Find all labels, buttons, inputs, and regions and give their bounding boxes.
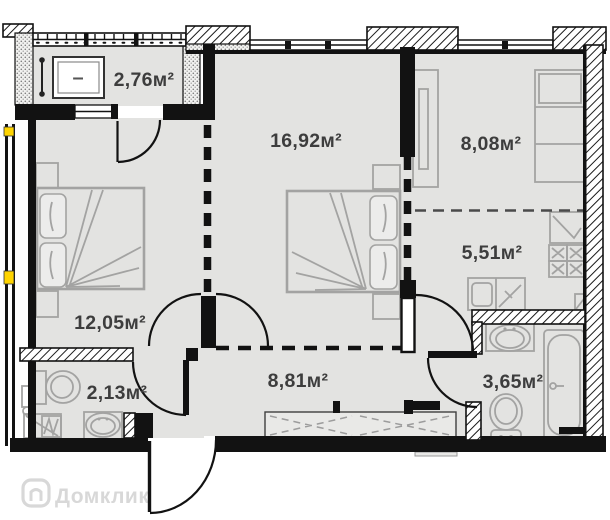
left-outer-line-2 — [12, 124, 15, 446]
hall-doors-pier — [201, 296, 216, 348]
floor-plan-page: Домклик — [0, 0, 610, 520]
balcony-cabinet-icon: – — [53, 57, 104, 98]
neighbor-door-threshold — [415, 452, 457, 456]
wc-corner-stub — [135, 413, 153, 438]
area-label-hallway: 8,81м² — [268, 370, 329, 392]
balcony-sill-wall-left — [15, 104, 75, 120]
wall-balcony-living — [203, 44, 215, 120]
closet-stub — [333, 401, 340, 413]
domclick-watermark: Домклик — [23, 480, 149, 508]
balcony-unit-label: – — [72, 67, 83, 89]
floor-plan: Домклик — [0, 0, 610, 520]
bathroom-top-wall — [472, 310, 585, 324]
bath-elbow-wall — [413, 401, 440, 410]
top-pier-1 — [186, 26, 250, 45]
right-outer-wall — [585, 45, 603, 450]
watermark-text: Домклик — [55, 485, 149, 508]
riser-mark-1 — [4, 127, 14, 136]
window-room8 — [458, 40, 553, 54]
area-label-balcony: 2,76м² — [114, 69, 175, 91]
balcony-glazing — [33, 33, 186, 46]
closet-icon — [265, 412, 456, 439]
area-label-wc: 2,13м² — [87, 382, 148, 404]
entry-door — [150, 440, 217, 513]
hall-stub-right — [404, 400, 413, 414]
wc-top-wall — [20, 348, 133, 361]
area-label-living: 16,92м² — [270, 130, 342, 152]
area-label-bathroom: 3,65м² — [483, 371, 544, 393]
area-label-room8: 8,08м² — [461, 133, 522, 155]
watermark-house-door — [31, 490, 41, 502]
area-label-kitchen: 5,51м² — [462, 242, 523, 264]
riser-mark-2 — [4, 271, 14, 284]
left-main-wall — [28, 107, 36, 452]
kitchen-door-pier — [400, 280, 416, 298]
watermark-house-icon — [23, 480, 49, 506]
balcony-right-wall — [183, 46, 200, 105]
top-pier-2 — [367, 27, 458, 50]
bottom-wall-left — [10, 438, 148, 452]
window-living — [250, 40, 367, 54]
balcony-left-wall — [15, 33, 33, 105]
balcony-window — [75, 104, 118, 119]
wall-living-room8 — [400, 47, 415, 157]
area-label-bedroom: 12,05м² — [74, 312, 146, 334]
wc-door-jamb — [186, 348, 198, 361]
stove-icon — [549, 245, 585, 277]
top-pier-1-inner — [186, 44, 250, 51]
bottom-wall-right — [215, 436, 606, 452]
left-outer-line-1 — [5, 124, 8, 446]
wc-small-pier — [124, 413, 135, 438]
